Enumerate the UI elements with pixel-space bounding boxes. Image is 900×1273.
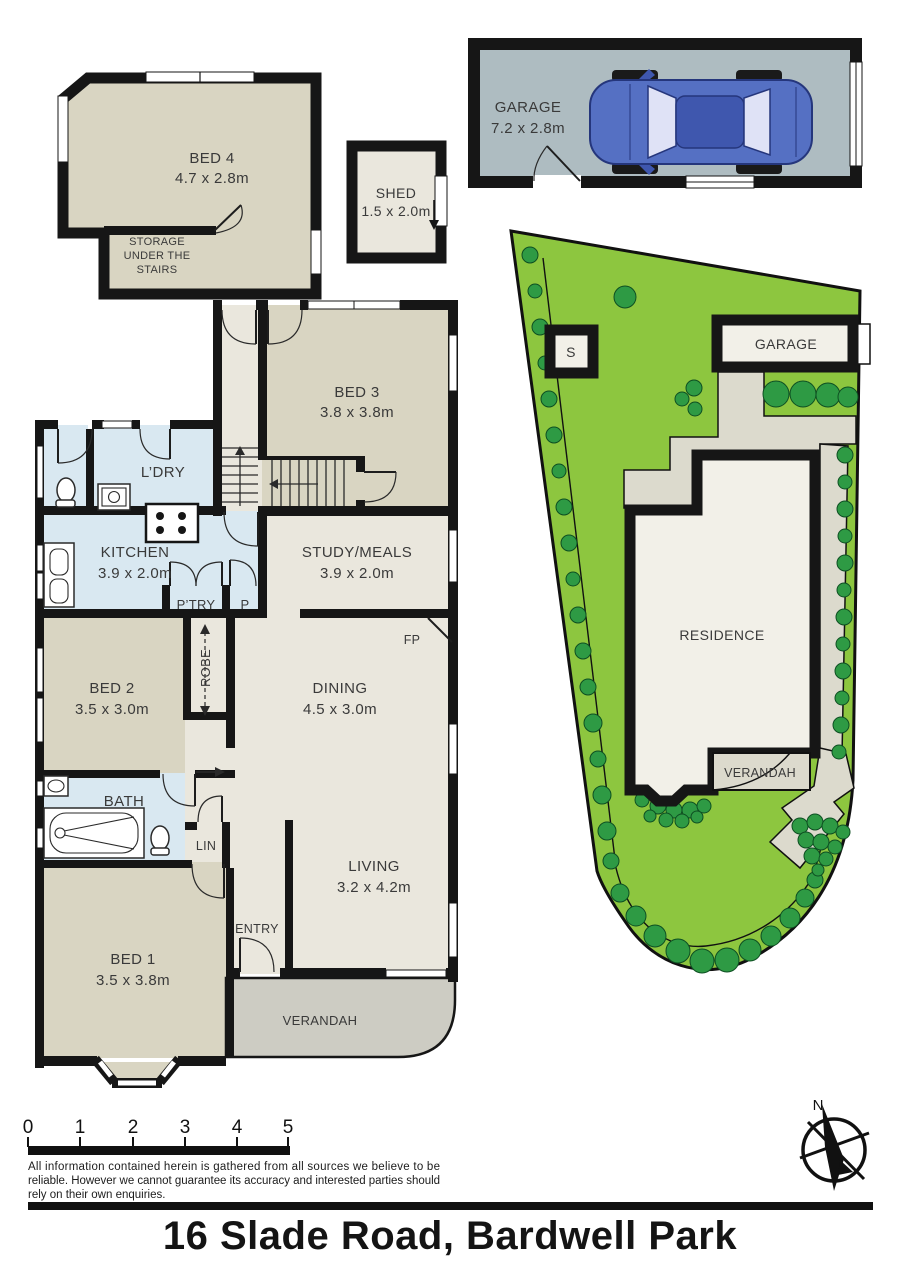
kitchen-dims: 3.9 x 2.0m [98,565,172,582]
site-verandah-label: VERANDAH [724,766,796,780]
tree-icon [614,286,636,308]
footer-divider [28,1202,873,1210]
bed1-label: BED 1 [110,951,155,968]
bed4-dims: 4.7 x 2.8m [175,170,249,187]
shed-label: SHED [376,185,417,201]
bed2-dims: 3.5 x 3.0m [75,701,149,718]
car-icon [590,69,812,175]
site-shed-label: S [566,344,576,360]
bath-label: BATH [104,793,145,810]
scale-tick-2: 2 [128,1117,139,1138]
disclaimer-line2: reliable. However we cannot guarantee it… [28,1175,440,1187]
window [311,230,321,274]
scale-tick-3: 3 [180,1117,191,1138]
kitchen-sink-icon [44,543,74,607]
bed4-unit: BED 4 4.7 x 2.8m STORAGE UNDER THE STAIR… [58,72,321,294]
p-closet-label: P [241,597,250,612]
verandah-label: VERANDAH [283,1013,358,1028]
window [435,176,447,226]
bathtub-icon [44,808,144,858]
garage-dims: 7.2 x 2.8m [491,120,565,137]
bath-sink-icon [44,776,68,796]
scale-tick-0: 0 [23,1117,34,1138]
pantry-label: P’TRY [177,597,216,612]
shed-room [352,146,441,258]
laundry-label: L’DRY [141,464,185,481]
scale-tick-1: 1 [75,1117,86,1138]
scale-bar-rule [28,1146,290,1155]
floorplan-canvas: BED 4 4.7 x 2.8m STORAGE UNDER THE STAIR… [0,0,900,1273]
scale-bar: 0 1 2 3 4 5 [23,1117,294,1155]
floorplan-page: BED 4 4.7 x 2.8m STORAGE UNDER THE STAIR… [0,0,900,1273]
bath-toilet-icon [151,826,169,855]
compass-north-label: N [813,1097,824,1114]
kitchen-label: KITCHEN [101,544,170,561]
linen-label: LIN [196,839,216,853]
storage-label-line2: UNDER THE [124,250,191,262]
entry-label: ENTRY [235,922,279,936]
bed4-label: BED 4 [189,150,234,167]
study-dims: 3.9 x 2.0m [320,565,394,582]
garage-label: GARAGE [495,99,562,116]
study-label: STUDY/MEALS [302,544,412,561]
bed3-label: BED 3 [334,384,379,401]
storage-label-line3: STAIRS [137,264,178,276]
robe-label: ROBE [198,649,213,687]
disclaimer-line1: All information contained herein is gath… [28,1161,440,1173]
disclaimer: All information contained herein is gath… [28,1161,440,1201]
bed1-dims: 3.5 x 3.8m [96,972,170,989]
site-residence-label: RESIDENCE [679,627,764,643]
page-title: 16 Slade Road, Bardwell Park [163,1214,737,1258]
scale-tick-4: 4 [232,1117,243,1138]
garage-unit: GARAGE 7.2 x 2.8m [474,44,862,188]
site-garage-label: GARAGE [755,336,817,352]
site-plan: S GARAGE RESIDENCE VERANDAH [511,231,870,973]
bed3-dims: 3.8 x 3.8m [320,404,394,421]
main-floorplan: BED 3 3.8 x 3.8m L’DRY KITCHEN 3.9 x 2.0… [35,300,458,1084]
scale-tick-5: 5 [283,1117,294,1138]
bed2-label: BED 2 [89,680,134,697]
stove-icon [146,504,198,542]
window [58,96,68,162]
shed-dims: 1.5 x 2.0m [361,203,430,219]
storage-label-line1: STORAGE [129,236,185,248]
study-room [262,511,452,613]
fireplace-label: FP [404,633,421,647]
dining-dims: 4.5 x 3.0m [303,701,377,718]
wc-toilet-icon [56,478,75,507]
living-dims: 3.2 x 4.2m [337,879,411,896]
shed-unit: SHED 1.5 x 2.0m [352,146,447,258]
compass-icon: N [800,1097,869,1191]
living-label: LIVING [348,858,400,875]
washing-machine-icon [98,484,130,510]
disclaimer-line3: rely on their own enquiries. [28,1189,165,1201]
dining-label: DINING [313,680,368,697]
dining-living-room [222,613,453,974]
